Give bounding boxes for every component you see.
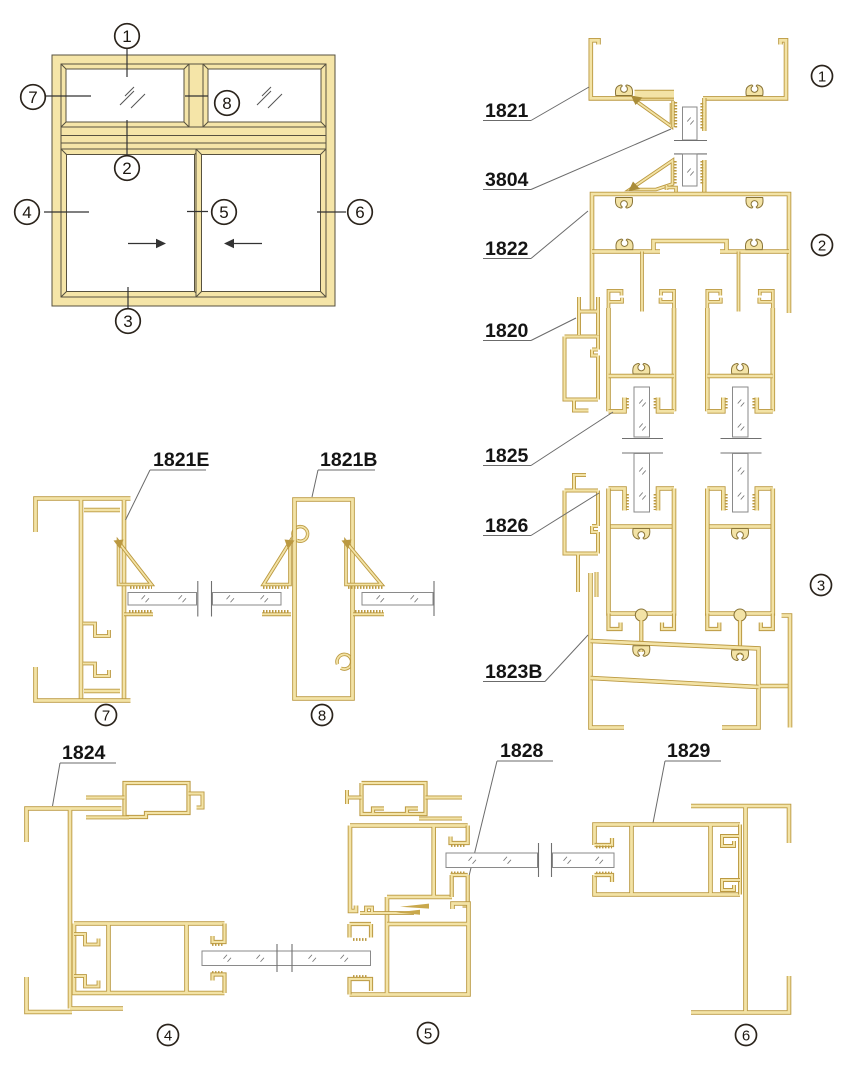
svg-text:1825: 1825 — [485, 445, 529, 467]
svg-text:2: 2 — [122, 159, 131, 178]
svg-text:1823B: 1823B — [485, 661, 542, 683]
svg-text:3804: 3804 — [485, 169, 529, 191]
svg-text:8: 8 — [222, 94, 231, 113]
svg-text:7: 7 — [102, 707, 110, 724]
svg-text:5: 5 — [424, 1025, 432, 1042]
svg-text:4: 4 — [164, 1027, 172, 1044]
svg-text:1829: 1829 — [667, 740, 711, 762]
svg-text:1: 1 — [122, 27, 131, 46]
svg-text:1828: 1828 — [500, 740, 544, 762]
svg-text:1824: 1824 — [62, 742, 106, 764]
svg-text:2: 2 — [818, 237, 826, 254]
svg-text:1821B: 1821B — [320, 449, 377, 471]
svg-text:1820: 1820 — [485, 320, 529, 342]
svg-text:1826: 1826 — [485, 515, 529, 537]
svg-text:6: 6 — [355, 203, 364, 222]
svg-text:1: 1 — [818, 68, 826, 85]
svg-text:6: 6 — [742, 1027, 750, 1044]
svg-text:8: 8 — [318, 707, 326, 724]
svg-text:1821: 1821 — [485, 100, 529, 122]
svg-text:1821E: 1821E — [153, 449, 209, 471]
svg-text:7: 7 — [28, 88, 37, 107]
svg-text:3: 3 — [123, 312, 132, 331]
svg-text:5: 5 — [219, 203, 228, 222]
svg-text:3: 3 — [817, 577, 825, 594]
svg-text:1822: 1822 — [485, 238, 529, 260]
svg-text:4: 4 — [22, 203, 31, 222]
